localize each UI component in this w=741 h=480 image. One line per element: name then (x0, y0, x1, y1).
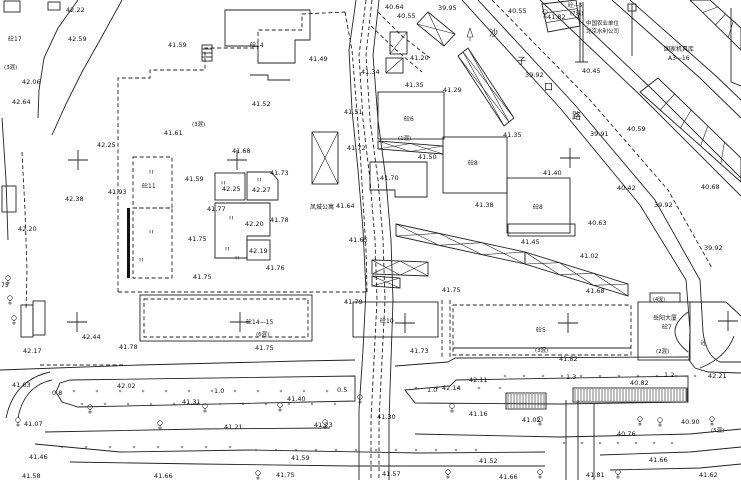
building-outline (33, 301, 45, 335)
elevation-label: 41.75 (188, 235, 207, 243)
elevation-label: 41.75 (442, 286, 461, 294)
elevation-label: 41.45 (521, 238, 540, 246)
brace-line (468, 48, 509, 122)
elevation-label: 39.92 (704, 244, 723, 252)
elevation-label: 41.79 (344, 298, 363, 306)
elevation-label: 1.0 (427, 386, 437, 394)
elevation-label: 41.07 (24, 420, 43, 428)
elevation-label: 41.76 (266, 264, 285, 272)
map-canvas: 42.2242.5941.59砼17(3混)42.0642.6442.2541.… (0, 0, 741, 480)
tree-icon (638, 417, 643, 422)
tree-icon (450, 404, 455, 409)
map-line (690, 302, 741, 316)
elevation-label: 42.02 (117, 382, 136, 390)
elevation-label: 41.70 (380, 174, 399, 182)
tree-icon (158, 421, 163, 426)
elevation-label: 42.19 (249, 247, 268, 255)
elevation-label: 41.75 (193, 273, 212, 281)
brace-line (439, 243, 482, 246)
map-line (38, 0, 78, 118)
elevation-label: 40.55 (397, 12, 416, 20)
elevation-label: 41.78 (119, 343, 138, 351)
name-label: 中国农业单位 (586, 19, 620, 27)
building-outline (2, 186, 16, 212)
name-label: A3—16 (668, 55, 690, 62)
elevation-label: 41.21 (224, 423, 243, 431)
elevation-label: 0.5 (337, 386, 347, 394)
tree-icon (446, 470, 451, 475)
tree-icon (278, 403, 283, 408)
building-label: 砼14 (250, 41, 264, 49)
building-outline (140, 295, 312, 341)
building-label: (3混) (192, 120, 205, 128)
elevation-label: 40.82 (630, 379, 649, 387)
elevation-label: 41.51 (344, 108, 363, 116)
elevation-label: 42.14 (442, 384, 461, 392)
elevation-label: 41.34 (361, 68, 380, 76)
building-outline (144, 299, 308, 337)
elevation-label: 42.44 (82, 333, 101, 341)
map-line (2, 118, 8, 240)
elevation-label: 41.52 (252, 100, 271, 108)
tree-icon (8, 296, 13, 301)
elevation-label: 42.25 (222, 185, 241, 193)
name-label: 国家机具库 (664, 45, 694, 53)
wall-bar (127, 208, 130, 278)
elevation-label: 40.42 (617, 184, 636, 192)
elevation-label: 41.68 (586, 287, 605, 295)
elevation-label: 42.64 (12, 98, 31, 106)
elevation-label: 41.61 (164, 129, 183, 137)
road-name-char: 口 (544, 83, 553, 93)
map-line (610, 464, 741, 470)
building-label: (5混) (711, 426, 724, 434)
elevation-label: 75 (1, 282, 9, 289)
elevation-label: 42.59 (68, 35, 87, 43)
elevation-label: 42.20 (18, 225, 37, 233)
elevation-label: 41.59 (168, 41, 187, 49)
braced-strip (372, 260, 428, 276)
elevation-label: 40.63 (588, 219, 607, 227)
elevation-label: 41.59 (185, 175, 204, 183)
elevation-label: 40.45 (582, 67, 601, 75)
map-line (250, 75, 290, 80)
elevation-label: 41.40 (287, 395, 306, 403)
building-label: 砼8 (468, 159, 478, 167)
building-label: 砼5 (536, 326, 546, 334)
elevation-label: 41.50 (418, 153, 437, 161)
tree-icon (256, 471, 261, 476)
name-label: 北京水利公司 (586, 27, 619, 35)
tree-icon (16, 418, 21, 423)
elevation-label: 41.29 (443, 86, 462, 94)
building-outline (48, 2, 60, 10)
elevation-label: 41.62 (699, 471, 718, 479)
elevation-label: 41.75 (276, 471, 295, 479)
building-outline (353, 302, 438, 337)
elevation-label: 42.27 (252, 186, 271, 194)
elevation-label: 41.38 (475, 201, 494, 209)
building-label: (7混) (570, 9, 583, 17)
elevation-label: 41.93 (108, 188, 127, 196)
elevation-label: 42.17 (23, 347, 42, 355)
elevation-label: 40.55 (508, 7, 527, 15)
hatch-line (660, 94, 674, 110)
map-curve (703, 332, 741, 362)
elevation-label: 1.2 (664, 371, 674, 379)
elevation-label: 41.52 (479, 457, 498, 465)
brace-line (463, 52, 504, 126)
hatch-line (716, 14, 726, 25)
building-label: (6混) (256, 330, 269, 338)
brace-line (411, 146, 444, 152)
elevation-label: 41.16 (469, 410, 488, 418)
elevation-label: 42.22 (66, 6, 85, 14)
elevation-label: 40.64 (385, 3, 404, 11)
building-label: 砼11 (142, 182, 156, 190)
building-outline (4, 1, 20, 12)
elevation-label: 1.0 (214, 387, 224, 395)
pine-tree-icon (467, 28, 473, 37)
map-line (52, 0, 122, 135)
elevation-label: 40.59 (627, 125, 646, 133)
elevation-label: 40.68 (701, 183, 720, 191)
braced-strip (458, 48, 514, 126)
elevation-label: 39.92 (654, 201, 673, 209)
elevation-label: 41.02 (522, 416, 541, 424)
elevation-label: 41.73 (410, 347, 429, 355)
building-label: 砼17 (8, 35, 22, 43)
tree-icon (538, 470, 543, 475)
elevation-label: 41.02 (580, 252, 599, 260)
tree-icon (12, 316, 17, 321)
map-line (70, 462, 545, 466)
brace-line (559, 273, 593, 274)
road-name-char: 子 (517, 56, 526, 67)
elevation-label: 40.76 (617, 430, 636, 438)
building-label: 砼10 (380, 317, 394, 325)
building-label: 砼14—15 (246, 318, 273, 326)
map-line (600, 447, 741, 455)
elevation-label: 41.72 (347, 144, 366, 152)
building-label: 砼 (701, 340, 706, 347)
elevation-label: 41.66 (499, 473, 518, 480)
elevation-label: 42.25 (97, 141, 116, 149)
elevation-label: 42.06 (22, 78, 41, 86)
elevation-label: 1.3 (566, 373, 576, 381)
elevation-label: 41.75 (255, 344, 274, 352)
building-outline (56, 376, 355, 407)
elevation-label: 42.21 (708, 372, 727, 380)
tree-icon (710, 417, 715, 422)
elevation-label: 41.20 (410, 54, 429, 62)
elevation-label: 41.58 (22, 472, 41, 480)
building-outline (225, 10, 310, 63)
hatch-line (703, 7, 718, 13)
elevation-label: 41.66 (154, 472, 173, 480)
elevation-label: 41.31 (182, 398, 201, 406)
building-outline (508, 224, 575, 236)
name-label: 凤城公寓 (310, 203, 334, 211)
building-label: 砼8 (533, 203, 543, 211)
building-label: (3混) (535, 346, 548, 354)
building-label: (2混) (656, 347, 669, 355)
elevation-label: 39.95 (438, 4, 457, 12)
map-line (45, 428, 330, 432)
building-label: (4混) (653, 296, 665, 303)
map-line (462, 0, 690, 360)
building-label: 砼—5 (568, 1, 583, 9)
brace-line (482, 252, 525, 255)
elevation-label: 42.20 (245, 220, 264, 228)
elevation-label: 41.35 (503, 131, 522, 139)
map-line (35, 444, 545, 453)
elevation-label: 42.38 (65, 195, 84, 203)
diagonal-mark (390, 32, 407, 54)
tree-icon (6, 276, 11, 281)
building-label: (1混) (398, 134, 411, 142)
building-outline (21, 305, 33, 337)
elevation-label: 41.57 (382, 470, 401, 478)
map-line (395, 357, 688, 366)
elevation-label: 0.8 (52, 389, 62, 397)
hatch-strip (640, 78, 741, 182)
elevation-label: 41.40 (543, 169, 562, 177)
diagonal-mark (386, 58, 403, 73)
brace-line (525, 263, 559, 264)
elevation-label: 41.30 (377, 413, 396, 421)
elevation-label: 41.35 (405, 81, 424, 89)
elevation-label: 40.90 (681, 418, 700, 426)
elevation-label: 41.78 (270, 216, 289, 224)
elevation-label: 39.91 (590, 130, 609, 138)
elevation-label: 41.77 (207, 205, 226, 213)
elevation-label: 41.73 (270, 169, 289, 177)
building-label: (3混) (4, 63, 17, 71)
brace-line (396, 233, 439, 236)
tree-icon (616, 470, 621, 475)
elevation-label: 41.59 (291, 454, 310, 462)
brace-line (378, 144, 411, 150)
building-label: 砼7 (662, 323, 672, 331)
name-label: 岳阳大厦 (653, 314, 677, 322)
elevation-label: 41.46 (29, 453, 48, 461)
elevation-label: 41.82 (559, 355, 578, 363)
elevation-label: 41.63 (12, 381, 31, 389)
building-outline (133, 208, 172, 278)
elevation-label: 41.49 (309, 55, 328, 63)
road-name-char: 沙 (489, 28, 498, 39)
hatch-line (701, 126, 708, 146)
elevation-label: 41.23 (314, 421, 333, 429)
elevation-label: 41.82 (547, 13, 566, 21)
road-name-char: 路 (572, 110, 581, 122)
cad-survey-map: 42.2242.5941.59砼17(3混)42.0642.6442.2541.… (0, 0, 741, 480)
elevation-label: 41.65 (349, 236, 368, 244)
elevation-label: 41.66 (649, 456, 668, 464)
tree-icon (658, 418, 663, 423)
elevation-label: 42.11 (469, 376, 488, 384)
map-line (731, 82, 741, 86)
elevation-label: 39.92 (525, 71, 544, 79)
elevation-label: 41.64 (336, 202, 355, 210)
building-label: 砼6 (404, 115, 414, 123)
brace-line (400, 262, 428, 275)
map-line (371, 26, 422, 72)
brace-line (594, 284, 628, 285)
elevation-label: 41.68 (232, 147, 251, 155)
elevation-label: 41.81 (586, 471, 605, 479)
